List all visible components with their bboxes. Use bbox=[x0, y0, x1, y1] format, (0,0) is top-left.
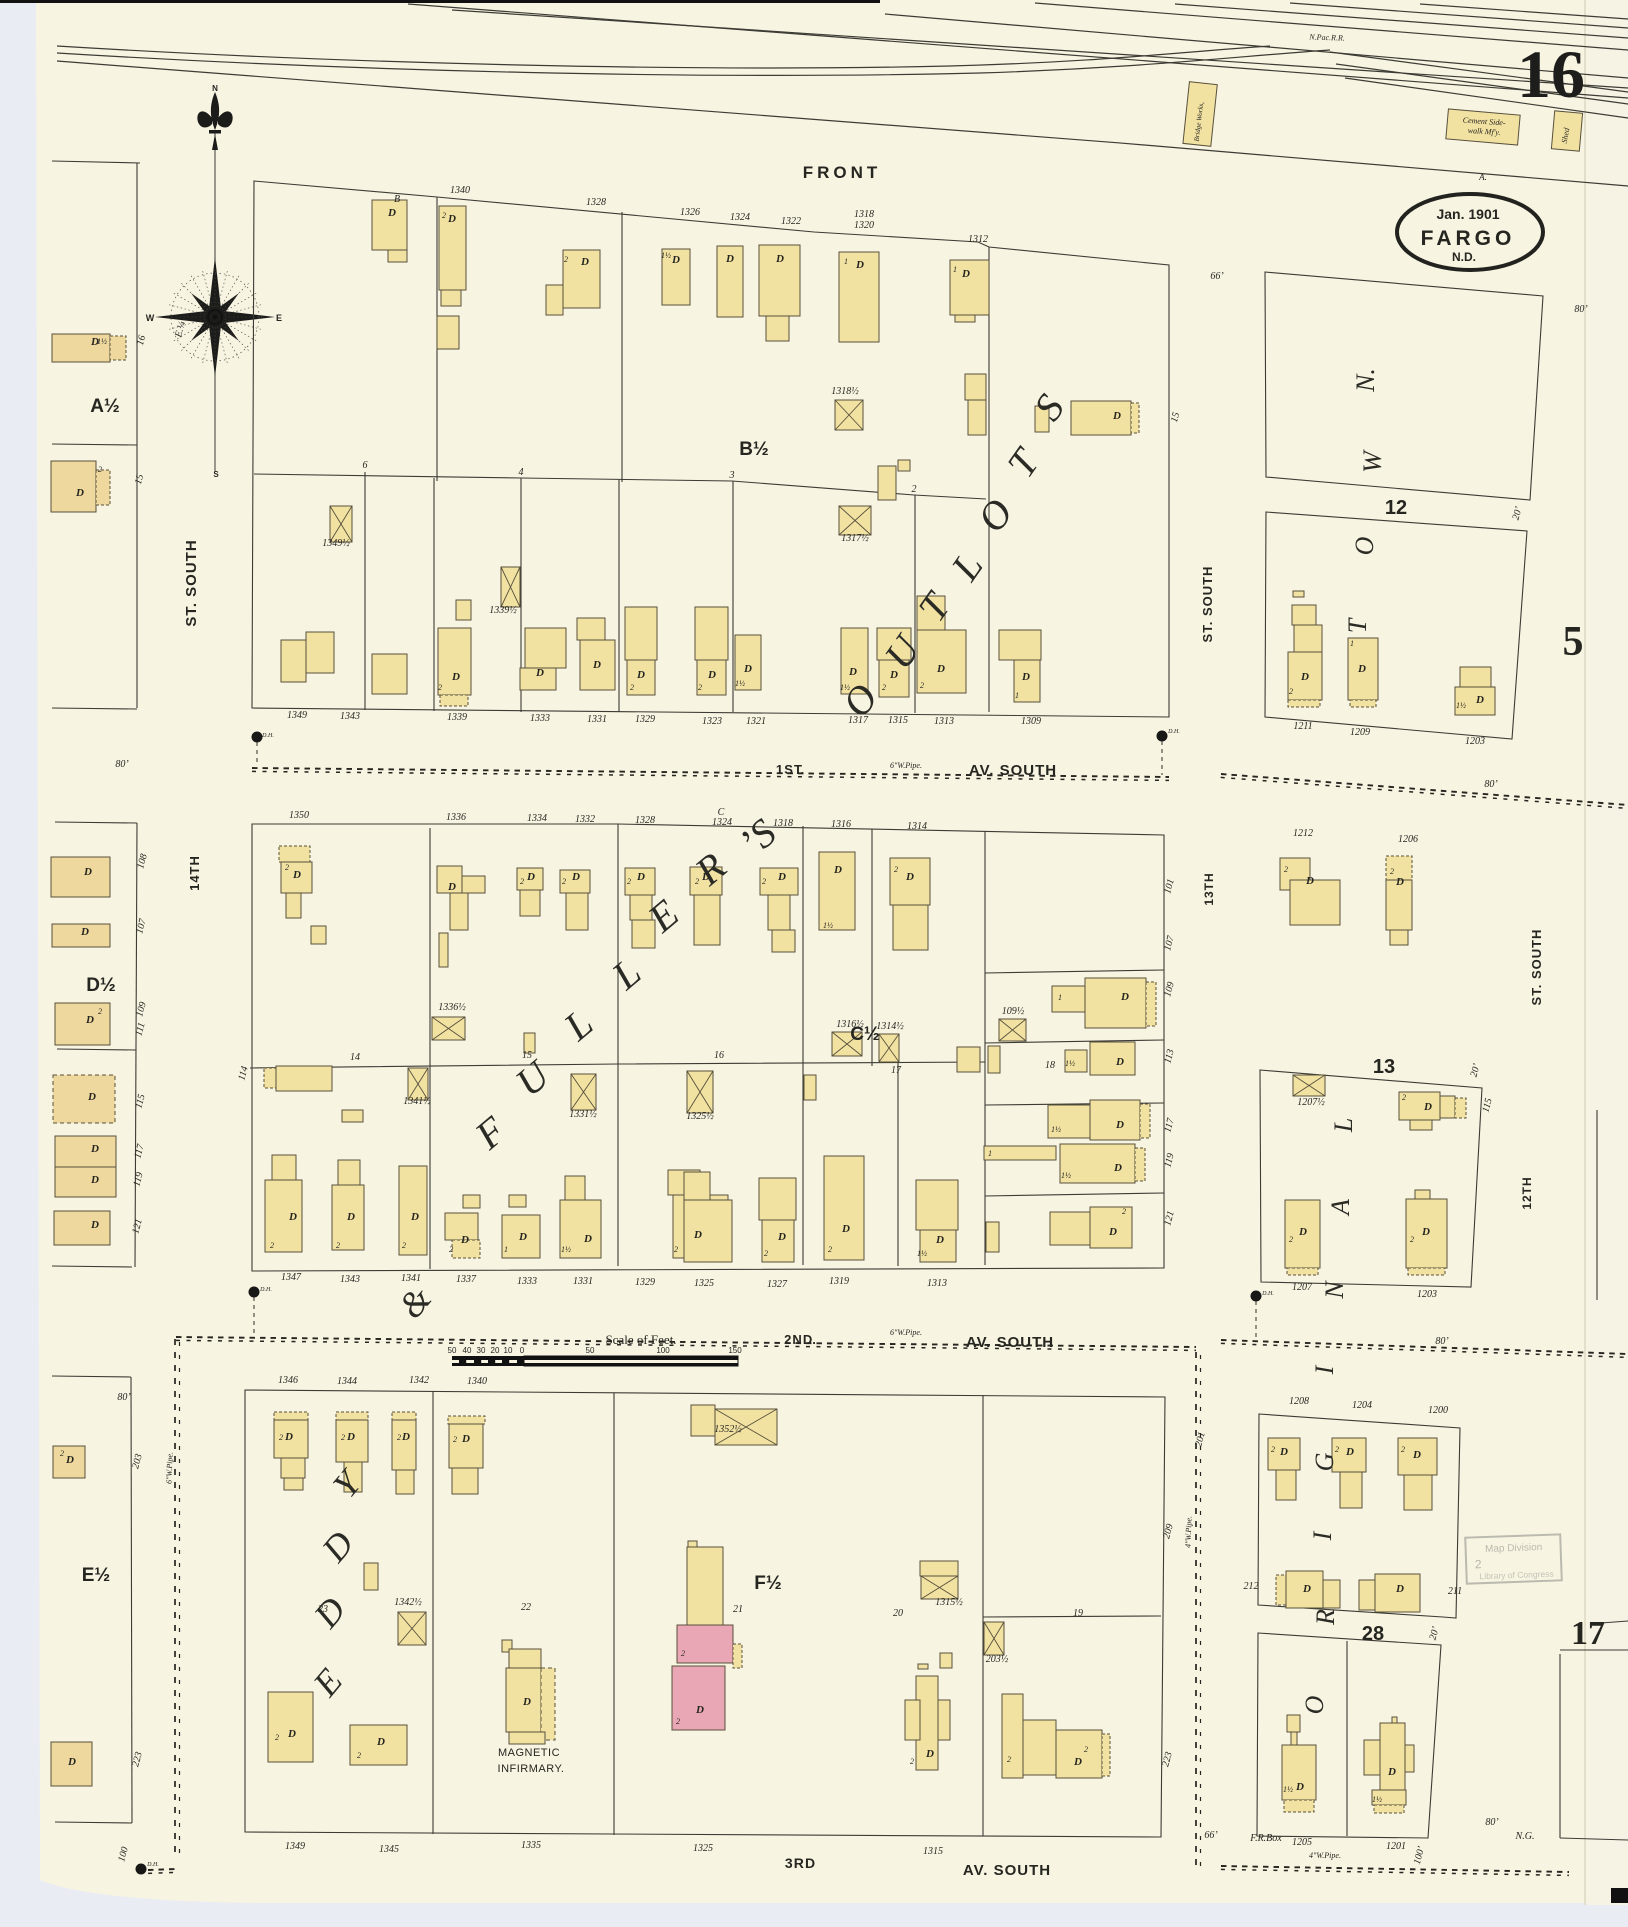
svg-text:AV. SOUTH: AV. SOUTH bbox=[963, 1862, 1051, 1879]
svg-text:1315: 1315 bbox=[923, 1846, 943, 1857]
svg-text:1318: 1318 bbox=[854, 209, 874, 220]
svg-text:2: 2 bbox=[681, 1649, 685, 1658]
svg-text:D: D bbox=[777, 1231, 786, 1243]
svg-text:2: 2 bbox=[764, 1249, 768, 1258]
svg-text:W: W bbox=[146, 313, 155, 323]
svg-text:D: D bbox=[461, 1433, 470, 1445]
svg-text:ST. SOUTH: ST. SOUTH bbox=[1200, 566, 1215, 643]
svg-text:66’: 66’ bbox=[1204, 1830, 1218, 1841]
svg-text:5: 5 bbox=[1563, 619, 1584, 665]
svg-text:D: D bbox=[848, 666, 857, 678]
svg-text:G: G bbox=[1310, 1452, 1339, 1471]
svg-text:1313: 1313 bbox=[934, 716, 954, 727]
svg-text:1331: 1331 bbox=[573, 1276, 593, 1287]
svg-text:1329: 1329 bbox=[635, 714, 655, 725]
svg-text:D: D bbox=[518, 1231, 527, 1243]
svg-text:D: D bbox=[1073, 1756, 1082, 1768]
svg-text:1½: 1½ bbox=[661, 251, 671, 260]
svg-text:6″W.Pipe.: 6″W.Pipe. bbox=[890, 761, 922, 770]
svg-text:1314½: 1314½ bbox=[876, 1021, 904, 1032]
svg-text:D: D bbox=[693, 1229, 702, 1241]
svg-text:2: 2 bbox=[1410, 1235, 1414, 1244]
svg-text:1341½: 1341½ bbox=[403, 1096, 431, 1107]
svg-text:1: 1 bbox=[1015, 691, 1019, 700]
svg-text:1½: 1½ bbox=[840, 683, 850, 692]
svg-text:1201: 1201 bbox=[1386, 1841, 1406, 1852]
svg-text:80’: 80’ bbox=[117, 1392, 131, 1403]
svg-text:O: O bbox=[1300, 1695, 1329, 1714]
svg-text:15: 15 bbox=[522, 1050, 532, 1061]
svg-text:1½: 1½ bbox=[917, 1249, 927, 1258]
svg-text:A.: A. bbox=[1478, 172, 1487, 182]
svg-text:D: D bbox=[1115, 1056, 1124, 1068]
svg-text:212: 212 bbox=[1244, 1581, 1259, 1592]
svg-text:2: 2 bbox=[453, 1435, 457, 1444]
svg-text:1200: 1200 bbox=[1428, 1405, 1448, 1416]
svg-text:N.Pac.R.R.: N.Pac.R.R. bbox=[1308, 32, 1345, 42]
svg-text:D: D bbox=[75, 487, 84, 499]
svg-text:D.H.: D.H. bbox=[1167, 729, 1180, 735]
svg-text:1350: 1350 bbox=[289, 810, 309, 821]
svg-text:D: D bbox=[592, 659, 601, 671]
svg-text:2: 2 bbox=[1402, 1093, 1406, 1102]
svg-text:D.H.: D.H. bbox=[1261, 1291, 1274, 1297]
svg-text:D: D bbox=[522, 1696, 531, 1708]
svg-text:D: D bbox=[833, 864, 842, 876]
svg-text:1332: 1332 bbox=[575, 814, 595, 825]
svg-text:2: 2 bbox=[1390, 867, 1394, 876]
svg-text:1: 1 bbox=[504, 1245, 508, 1254]
svg-text:D: D bbox=[1305, 875, 1314, 887]
svg-text:2: 2 bbox=[285, 863, 289, 872]
svg-text:14TH: 14TH bbox=[187, 855, 202, 891]
svg-text:1340: 1340 bbox=[450, 185, 470, 196]
svg-text:1204: 1204 bbox=[1352, 1400, 1372, 1411]
svg-text:1325½: 1325½ bbox=[686, 1111, 714, 1122]
svg-text:1205: 1205 bbox=[1292, 1837, 1312, 1848]
svg-text:2: 2 bbox=[698, 683, 702, 692]
svg-text:D: D bbox=[401, 1431, 410, 1443]
svg-text:19: 19 bbox=[1073, 1608, 1083, 1619]
svg-text:80’: 80’ bbox=[1484, 779, 1498, 790]
svg-text:D: D bbox=[1357, 663, 1366, 675]
svg-text:16: 16 bbox=[1517, 36, 1585, 112]
svg-text:1203: 1203 bbox=[1465, 736, 1485, 747]
svg-text:2: 2 bbox=[1289, 687, 1293, 696]
svg-text:D.H.: D.H. bbox=[261, 733, 274, 739]
svg-text:1324: 1324 bbox=[730, 212, 750, 223]
svg-text:1340: 1340 bbox=[467, 1376, 487, 1387]
svg-text:2: 2 bbox=[630, 683, 634, 692]
svg-text:O: O bbox=[1350, 536, 1379, 555]
svg-text:2: 2 bbox=[882, 683, 886, 692]
svg-text:1349: 1349 bbox=[287, 710, 307, 721]
svg-text:1½: 1½ bbox=[735, 679, 745, 688]
svg-text:1319: 1319 bbox=[829, 1276, 849, 1287]
svg-text:D: D bbox=[1120, 991, 1129, 1003]
svg-text:6: 6 bbox=[363, 460, 368, 471]
svg-text:N.: N. bbox=[1351, 368, 1380, 393]
svg-text:1333: 1333 bbox=[530, 713, 550, 724]
svg-text:D: D bbox=[346, 1431, 355, 1443]
svg-text:1335: 1335 bbox=[521, 1840, 541, 1851]
svg-text:2: 2 bbox=[60, 1449, 64, 1458]
svg-text:40: 40 bbox=[463, 1346, 472, 1355]
svg-text:D: D bbox=[1300, 671, 1309, 683]
svg-text:N.D.: N.D. bbox=[1452, 250, 1476, 264]
svg-text:D: D bbox=[701, 871, 710, 883]
svg-text:2: 2 bbox=[98, 1007, 102, 1016]
svg-text:1½: 1½ bbox=[1372, 1795, 1382, 1804]
svg-text:D: D bbox=[841, 1223, 850, 1235]
svg-text:2: 2 bbox=[520, 877, 524, 886]
svg-text:30: 30 bbox=[477, 1346, 486, 1355]
svg-text:203½: 203½ bbox=[986, 1654, 1009, 1665]
svg-text:1324: 1324 bbox=[712, 817, 732, 828]
svg-text:D: D bbox=[1395, 876, 1404, 888]
svg-text:D: D bbox=[387, 207, 396, 219]
svg-text:D: D bbox=[636, 669, 645, 681]
svg-text:D: D bbox=[1108, 1226, 1117, 1238]
svg-text:1317½: 1317½ bbox=[841, 533, 869, 544]
svg-text:D: D bbox=[571, 871, 580, 883]
svg-text:D: D bbox=[961, 268, 970, 280]
svg-text:1½: 1½ bbox=[1283, 1785, 1293, 1794]
svg-text:2: 2 bbox=[1271, 1445, 1275, 1454]
svg-text:1: 1 bbox=[844, 257, 848, 266]
svg-text:2: 2 bbox=[627, 877, 631, 886]
svg-text:D: D bbox=[925, 1748, 934, 1760]
svg-text:1209: 1209 bbox=[1350, 727, 1370, 738]
svg-text:D: D bbox=[671, 254, 680, 266]
svg-text:D: D bbox=[90, 1143, 99, 1155]
svg-text:1½: 1½ bbox=[823, 921, 833, 930]
svg-text:1336: 1336 bbox=[446, 812, 466, 823]
svg-text:D: D bbox=[743, 663, 752, 675]
svg-text:1: 1 bbox=[1350, 639, 1354, 648]
svg-text:D: D bbox=[936, 663, 945, 675]
svg-text:1349: 1349 bbox=[285, 1841, 305, 1852]
svg-text:66’: 66’ bbox=[1210, 271, 1224, 282]
svg-text:2: 2 bbox=[397, 1433, 401, 1442]
svg-text:I: I bbox=[1310, 1364, 1339, 1375]
svg-text:3: 3 bbox=[729, 470, 735, 481]
svg-text:1323: 1323 bbox=[702, 716, 722, 727]
svg-text:20: 20 bbox=[893, 1608, 903, 1619]
svg-text:1325: 1325 bbox=[693, 1843, 713, 1854]
svg-text:2: 2 bbox=[1335, 1445, 1339, 1454]
svg-text:1316½: 1316½ bbox=[836, 1019, 864, 1030]
svg-text:1344: 1344 bbox=[337, 1376, 357, 1387]
svg-text:1211: 1211 bbox=[1293, 721, 1312, 732]
svg-text:F½: F½ bbox=[754, 1573, 781, 1594]
svg-text:109½: 109½ bbox=[1002, 1006, 1025, 1017]
svg-text:100: 100 bbox=[656, 1346, 670, 1355]
svg-text:50: 50 bbox=[448, 1346, 457, 1355]
svg-text:1342: 1342 bbox=[409, 1375, 429, 1386]
svg-text:1203: 1203 bbox=[1417, 1289, 1437, 1300]
svg-text:1317: 1317 bbox=[848, 715, 869, 726]
svg-text:6″W.Pipe.: 6″W.Pipe. bbox=[164, 1452, 174, 1484]
svg-text:D: D bbox=[451, 671, 460, 683]
svg-text:1207: 1207 bbox=[1292, 1282, 1313, 1293]
svg-text:D: D bbox=[85, 1014, 94, 1026]
svg-text:N.G.: N.G. bbox=[1515, 1831, 1535, 1842]
svg-text:D: D bbox=[376, 1736, 385, 1748]
svg-text:1207½: 1207½ bbox=[1297, 1097, 1325, 1108]
svg-text:D: D bbox=[935, 1234, 944, 1246]
svg-text:D: D bbox=[707, 669, 716, 681]
svg-text:D: D bbox=[1387, 1766, 1396, 1778]
svg-text:1328: 1328 bbox=[586, 197, 606, 208]
svg-text:1327: 1327 bbox=[767, 1279, 788, 1290]
svg-text:1320: 1320 bbox=[854, 220, 874, 231]
svg-text:2: 2 bbox=[676, 1717, 680, 1726]
svg-text:1334: 1334 bbox=[527, 813, 547, 824]
svg-text:D: D bbox=[1295, 1781, 1304, 1793]
svg-text:2: 2 bbox=[438, 683, 442, 692]
svg-text:1309: 1309 bbox=[1021, 716, 1041, 727]
svg-text:1 S T.: 1 S T. bbox=[776, 762, 804, 777]
svg-text:D: D bbox=[1302, 1583, 1311, 1595]
svg-text:1339: 1339 bbox=[447, 712, 467, 723]
svg-text:Scale of Feet.: Scale of Feet. bbox=[605, 1332, 676, 1347]
svg-text:1212: 1212 bbox=[1293, 828, 1313, 839]
svg-text:S: S bbox=[213, 470, 219, 479]
svg-text:1½: 1½ bbox=[561, 1245, 571, 1254]
svg-text:2: 2 bbox=[341, 1433, 345, 1442]
svg-text:18: 18 bbox=[1045, 1060, 1055, 1071]
svg-text:D: D bbox=[1423, 1101, 1432, 1113]
svg-text:10: 10 bbox=[504, 1346, 513, 1355]
svg-text:28: 28 bbox=[1362, 1623, 1384, 1645]
svg-text:80’: 80’ bbox=[115, 759, 129, 770]
svg-text:1342½: 1342½ bbox=[394, 1597, 422, 1608]
svg-text:2: 2 bbox=[442, 211, 446, 220]
svg-text:D: D bbox=[695, 1704, 704, 1716]
svg-text:D: D bbox=[287, 1728, 296, 1740]
svg-text:D: D bbox=[1345, 1446, 1354, 1458]
svg-text:1347: 1347 bbox=[281, 1272, 302, 1283]
svg-text:A½: A½ bbox=[90, 396, 120, 417]
svg-text:2: 2 bbox=[920, 681, 924, 690]
svg-text:1318: 1318 bbox=[773, 818, 793, 829]
svg-text:D: D bbox=[410, 1211, 419, 1223]
svg-text:L: L bbox=[1329, 1118, 1358, 1133]
svg-text:1337: 1337 bbox=[456, 1274, 477, 1285]
svg-text:D: D bbox=[346, 1211, 355, 1223]
svg-text:1206: 1206 bbox=[1398, 834, 1418, 845]
svg-text:2: 2 bbox=[336, 1241, 340, 1250]
svg-text:D: D bbox=[90, 1219, 99, 1231]
svg-text:D: D bbox=[526, 871, 535, 883]
svg-text:E½: E½ bbox=[82, 1565, 111, 1586]
svg-text:16: 16 bbox=[714, 1050, 724, 1061]
svg-text:AV. SOUTH: AV. SOUTH bbox=[966, 1334, 1054, 1351]
svg-text:21: 21 bbox=[733, 1604, 743, 1615]
svg-text:2: 2 bbox=[449, 1245, 453, 1254]
svg-text:1345: 1345 bbox=[379, 1844, 399, 1855]
svg-text:1½: 1½ bbox=[1061, 1171, 1071, 1180]
svg-text:D.H.: D.H. bbox=[259, 1287, 272, 1293]
svg-text:1339½: 1339½ bbox=[489, 605, 517, 616]
svg-text:Map Division: Map Division bbox=[1485, 1542, 1543, 1555]
svg-text:W: W bbox=[1358, 449, 1387, 473]
svg-text:D: D bbox=[725, 253, 734, 265]
svg-text:D: D bbox=[1115, 1119, 1124, 1131]
svg-text:80’: 80’ bbox=[1574, 304, 1588, 315]
svg-text:D: D bbox=[1279, 1446, 1288, 1458]
svg-text:1325: 1325 bbox=[694, 1278, 714, 1289]
svg-text:1315: 1315 bbox=[888, 715, 908, 726]
svg-text:2: 2 bbox=[762, 877, 766, 886]
svg-text:D: D bbox=[1475, 694, 1484, 706]
svg-text:D: D bbox=[777, 871, 786, 883]
svg-text:N: N bbox=[1320, 1280, 1349, 1300]
svg-text:2: 2 bbox=[894, 865, 898, 874]
svg-text:D: D bbox=[284, 1431, 293, 1443]
svg-text:I: I bbox=[1308, 1530, 1337, 1541]
svg-text:1312: 1312 bbox=[968, 234, 988, 245]
svg-text:D: D bbox=[80, 926, 89, 938]
svg-text:150: 150 bbox=[728, 1346, 742, 1355]
svg-text:1½: 1½ bbox=[1051, 1125, 1061, 1134]
svg-text:1: 1 bbox=[988, 1149, 992, 1158]
svg-text:1: 1 bbox=[953, 265, 957, 274]
svg-text:2: 2 bbox=[1401, 1445, 1405, 1454]
svg-text:1: 1 bbox=[1058, 993, 1062, 1002]
svg-text:Jan. 1901: Jan. 1901 bbox=[1436, 206, 1499, 222]
svg-text:13TH: 13TH bbox=[1202, 872, 1216, 905]
svg-text:D: D bbox=[1113, 1162, 1122, 1174]
svg-text:14: 14 bbox=[350, 1052, 360, 1063]
svg-text:2 N D.: 2 N D. bbox=[784, 1332, 816, 1347]
svg-text:2: 2 bbox=[828, 1245, 832, 1254]
svg-text:2: 2 bbox=[912, 484, 917, 495]
svg-text:4″W.Pipe.: 4″W.Pipe. bbox=[1309, 1851, 1341, 1860]
svg-text:1318½: 1318½ bbox=[831, 386, 859, 397]
svg-text:D: D bbox=[1021, 671, 1030, 683]
svg-text:D: D bbox=[1412, 1449, 1421, 1461]
svg-text:2: 2 bbox=[1007, 1755, 1011, 1764]
svg-text:B: B bbox=[394, 194, 400, 205]
svg-text:D: D bbox=[67, 1756, 76, 1768]
svg-text:2: 2 bbox=[279, 1433, 283, 1442]
svg-text:1322: 1322 bbox=[781, 216, 801, 227]
svg-text:A: A bbox=[1326, 1199, 1355, 1217]
svg-text:D: D bbox=[460, 1234, 469, 1246]
svg-text:1331: 1331 bbox=[587, 714, 607, 725]
svg-text:INFIRMARY.: INFIRMARY. bbox=[498, 1763, 565, 1775]
svg-text:2: 2 bbox=[562, 877, 566, 886]
svg-text:1½: 1½ bbox=[1456, 701, 1466, 710]
svg-text:D: D bbox=[1298, 1226, 1307, 1238]
svg-text:2: 2 bbox=[1284, 865, 1288, 874]
svg-text:ST. SOUTH: ST. SOUTH bbox=[1529, 929, 1544, 1006]
svg-text:D: D bbox=[583, 1233, 592, 1245]
svg-text:D: D bbox=[1395, 1583, 1404, 1595]
svg-text:1326: 1326 bbox=[680, 207, 700, 218]
svg-text:1321: 1321 bbox=[746, 716, 766, 727]
svg-text:ST. SOUTH: ST. SOUTH bbox=[183, 539, 200, 626]
svg-text:1331½: 1331½ bbox=[569, 1109, 597, 1120]
svg-text:1341: 1341 bbox=[401, 1273, 421, 1284]
svg-text:D: D bbox=[83, 866, 92, 878]
svg-text:12: 12 bbox=[1385, 497, 1407, 519]
svg-text:2: 2 bbox=[674, 1245, 678, 1254]
svg-text:17: 17 bbox=[891, 1065, 902, 1076]
svg-text:2: 2 bbox=[270, 1241, 274, 1250]
svg-text:2: 2 bbox=[695, 877, 699, 886]
svg-text:1314: 1314 bbox=[907, 821, 927, 832]
svg-text:1333: 1333 bbox=[517, 1276, 537, 1287]
svg-text:R: R bbox=[1311, 1609, 1340, 1626]
svg-text:MAGNETIC: MAGNETIC bbox=[498, 1747, 560, 1759]
svg-text:1343: 1343 bbox=[340, 711, 360, 722]
svg-text:D: D bbox=[775, 253, 784, 265]
svg-text:2: 2 bbox=[98, 465, 102, 474]
svg-text:D: D bbox=[447, 881, 456, 893]
svg-text:211: 211 bbox=[1448, 1586, 1462, 1597]
svg-text:3 R D: 3 R D bbox=[785, 1855, 815, 1871]
svg-text:1343: 1343 bbox=[340, 1274, 360, 1285]
svg-text:D: D bbox=[292, 869, 301, 881]
svg-text:80’: 80’ bbox=[1485, 1817, 1499, 1828]
svg-text:12TH: 12TH bbox=[1520, 1176, 1534, 1209]
svg-text:D: D bbox=[87, 1091, 96, 1103]
svg-text:D: D bbox=[65, 1454, 74, 1466]
svg-text:D: D bbox=[288, 1211, 297, 1223]
svg-text:1313: 1313 bbox=[927, 1278, 947, 1289]
svg-text:0: 0 bbox=[520, 1346, 525, 1355]
svg-text:1352½: 1352½ bbox=[714, 1424, 742, 1435]
svg-text:50: 50 bbox=[586, 1346, 595, 1355]
svg-text:2: 2 bbox=[1122, 1207, 1126, 1216]
svg-text:1329: 1329 bbox=[635, 1277, 655, 1288]
svg-text:D: D bbox=[889, 669, 898, 681]
svg-text:D: D bbox=[1421, 1226, 1430, 1238]
svg-text:2: 2 bbox=[1289, 1235, 1293, 1244]
svg-text:D: D bbox=[1112, 410, 1121, 422]
svg-text:T: T bbox=[1343, 617, 1372, 633]
svg-text:17: 17 bbox=[1571, 1615, 1605, 1652]
svg-text:1346: 1346 bbox=[278, 1375, 298, 1386]
svg-text:D: D bbox=[580, 256, 589, 268]
svg-text:D: D bbox=[535, 667, 544, 679]
svg-text:20: 20 bbox=[491, 1346, 500, 1355]
svg-text:2: 2 bbox=[275, 1733, 279, 1742]
svg-text:1½: 1½ bbox=[97, 337, 107, 346]
svg-text:13: 13 bbox=[1373, 1056, 1395, 1078]
svg-text:D: D bbox=[905, 871, 914, 883]
svg-text:FRONT: FRONT bbox=[803, 163, 882, 182]
svg-text:D: D bbox=[855, 259, 864, 271]
svg-text:1336½: 1336½ bbox=[438, 1002, 466, 1013]
svg-text:2: 2 bbox=[1475, 1557, 1482, 1571]
svg-text:80’: 80’ bbox=[1435, 1336, 1449, 1347]
svg-text:2: 2 bbox=[357, 1751, 361, 1760]
svg-text:22: 22 bbox=[521, 1602, 531, 1613]
svg-text:1328: 1328 bbox=[635, 815, 655, 826]
svg-text:D: D bbox=[447, 213, 456, 225]
svg-text:2: 2 bbox=[910, 1757, 914, 1766]
svg-text:6″W.Pipe.: 6″W.Pipe. bbox=[890, 1328, 922, 1337]
svg-text:2: 2 bbox=[564, 255, 568, 264]
svg-text:D: D bbox=[636, 871, 645, 883]
svg-text:B½: B½ bbox=[739, 439, 769, 460]
svg-text:E: E bbox=[276, 313, 282, 323]
svg-text:2: 2 bbox=[402, 1241, 406, 1250]
